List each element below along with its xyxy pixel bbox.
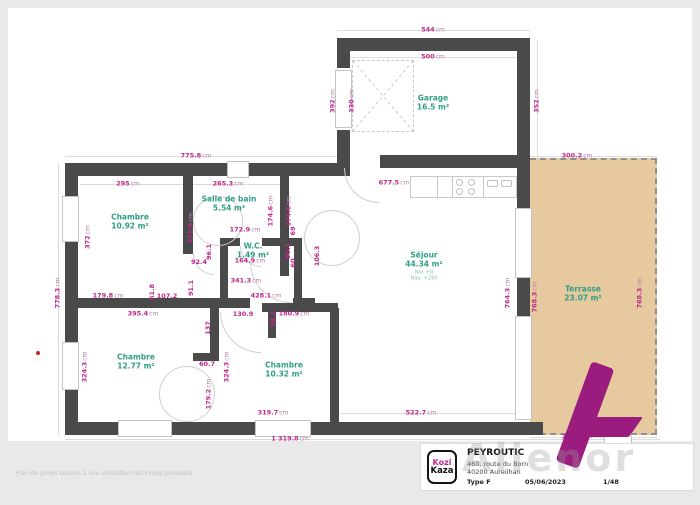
dimension-label: 778.3cm <box>55 278 62 309</box>
disclaimer-text: Plan de projet soumis à une validation t… <box>16 470 193 477</box>
dimension-label: 677.5cm <box>379 180 410 187</box>
dimension-label: 319.7cm <box>258 410 289 417</box>
room-label: Terrasse23.07 m² <box>564 285 601 304</box>
dimension-label: 130.9 <box>233 311 254 318</box>
kitchen-counter <box>437 176 453 198</box>
dimension-label: 272.9cm <box>188 213 195 244</box>
dimension-label: 179.8cm <box>93 293 124 300</box>
window <box>62 196 79 242</box>
window <box>62 342 79 390</box>
logo-word-bottom: Kaza <box>430 467 453 476</box>
dimension-label: 428.1cm <box>251 293 282 300</box>
dimension-label: 295cm <box>116 181 140 188</box>
window <box>515 208 532 278</box>
kozikaza-logo: Kozi Kaza <box>427 450 457 484</box>
room-label: Chambre10.32 m² <box>265 361 303 380</box>
window <box>118 420 172 437</box>
dimension-label: 372cm <box>85 225 92 249</box>
room-label: Chambre10.92 m² <box>111 213 149 232</box>
wall-segment <box>294 238 302 304</box>
dimension-label: 172.9cm <box>230 227 261 234</box>
sink-bowl <box>487 180 498 187</box>
wall-segment <box>220 238 228 304</box>
dimension-label: 324.3cm <box>224 352 231 383</box>
sliding-door <box>515 316 532 420</box>
dimension-label: 768.3cm <box>637 278 644 309</box>
dimension-label: 107.2 <box>157 293 178 300</box>
dimension-label: 90.1 <box>285 243 292 259</box>
dimension-label: 174.6cm <box>268 196 275 227</box>
dimension-line <box>530 156 657 157</box>
wall-segment <box>65 163 227 176</box>
dimension-label: 60 <box>290 258 297 267</box>
sink-bowl <box>501 180 512 187</box>
dimension-label: 768.3cm <box>532 282 539 313</box>
room-label: Garage16.5 m² <box>417 94 449 113</box>
wall-segment <box>249 163 340 176</box>
dimension-label: 96.1 <box>206 244 213 260</box>
dimension-label: 265.3cm <box>213 181 244 188</box>
room-label: Salle de bain5.54 m² <box>202 195 257 214</box>
hob-burner <box>456 179 463 186</box>
hob-burner <box>456 188 463 195</box>
wall-segment <box>517 38 530 168</box>
room-label: Chambre12.77 m² <box>117 353 155 372</box>
dimension-label: 60.7 <box>199 361 215 368</box>
dimension-label: 69 <box>290 226 297 235</box>
window <box>227 161 249 178</box>
dimension-label: 500cm <box>421 54 445 61</box>
dimension-label: 330cm <box>349 89 356 113</box>
dimension-label: 522.7cm <box>406 410 437 417</box>
wall-segment <box>380 155 517 168</box>
wall-segment <box>330 308 339 422</box>
dimension-label: 392cm <box>330 89 337 113</box>
hob-burner <box>468 179 475 186</box>
dimension-label: 324.3cm <box>82 352 89 383</box>
dimension-label: 180.9cm <box>279 311 310 318</box>
watermark-text: Alienor <box>462 436 636 480</box>
dimension-label: 341.3cm <box>231 278 262 285</box>
dimension-label: 61.8 <box>149 284 156 300</box>
dimension-label: 58.3 <box>270 311 277 327</box>
wall-segment <box>337 38 350 68</box>
dimension-label: 544cm <box>421 27 445 34</box>
wall-segment <box>517 168 530 208</box>
dimension-label: 300.2cm <box>562 153 593 160</box>
dimension-label: 352cm <box>534 89 541 113</box>
cross-lines <box>353 61 413 131</box>
dimension-label: 174.6cm <box>286 196 293 227</box>
wall-segment <box>337 38 530 51</box>
hob-burner <box>468 188 475 195</box>
dimension-label: 164.9cm <box>235 258 266 265</box>
dimension-label: 395.4cm <box>128 311 159 318</box>
dimension-label: 179.2cm <box>206 379 213 410</box>
marker-dot <box>36 351 40 355</box>
dimension-label: 1 319.8cm <box>271 436 309 443</box>
garage-floor-marking <box>352 60 414 132</box>
dimension-label: 106.3 <box>314 246 321 267</box>
dimension-label: 91.1 <box>188 280 195 296</box>
room-label: Séjour44.34 m²Niv. +0Hau. +250 <box>405 250 442 281</box>
floor-plan-sheet: { "page": { "disclaimer": "Plan de proje… <box>0 0 700 505</box>
kitchen-counter <box>410 176 438 198</box>
wall-segment <box>517 278 530 316</box>
dimension-label: 764.3cm <box>505 278 512 309</box>
dimension-label: 775.8cm <box>181 153 212 160</box>
dimension-label: 137 <box>205 321 212 335</box>
